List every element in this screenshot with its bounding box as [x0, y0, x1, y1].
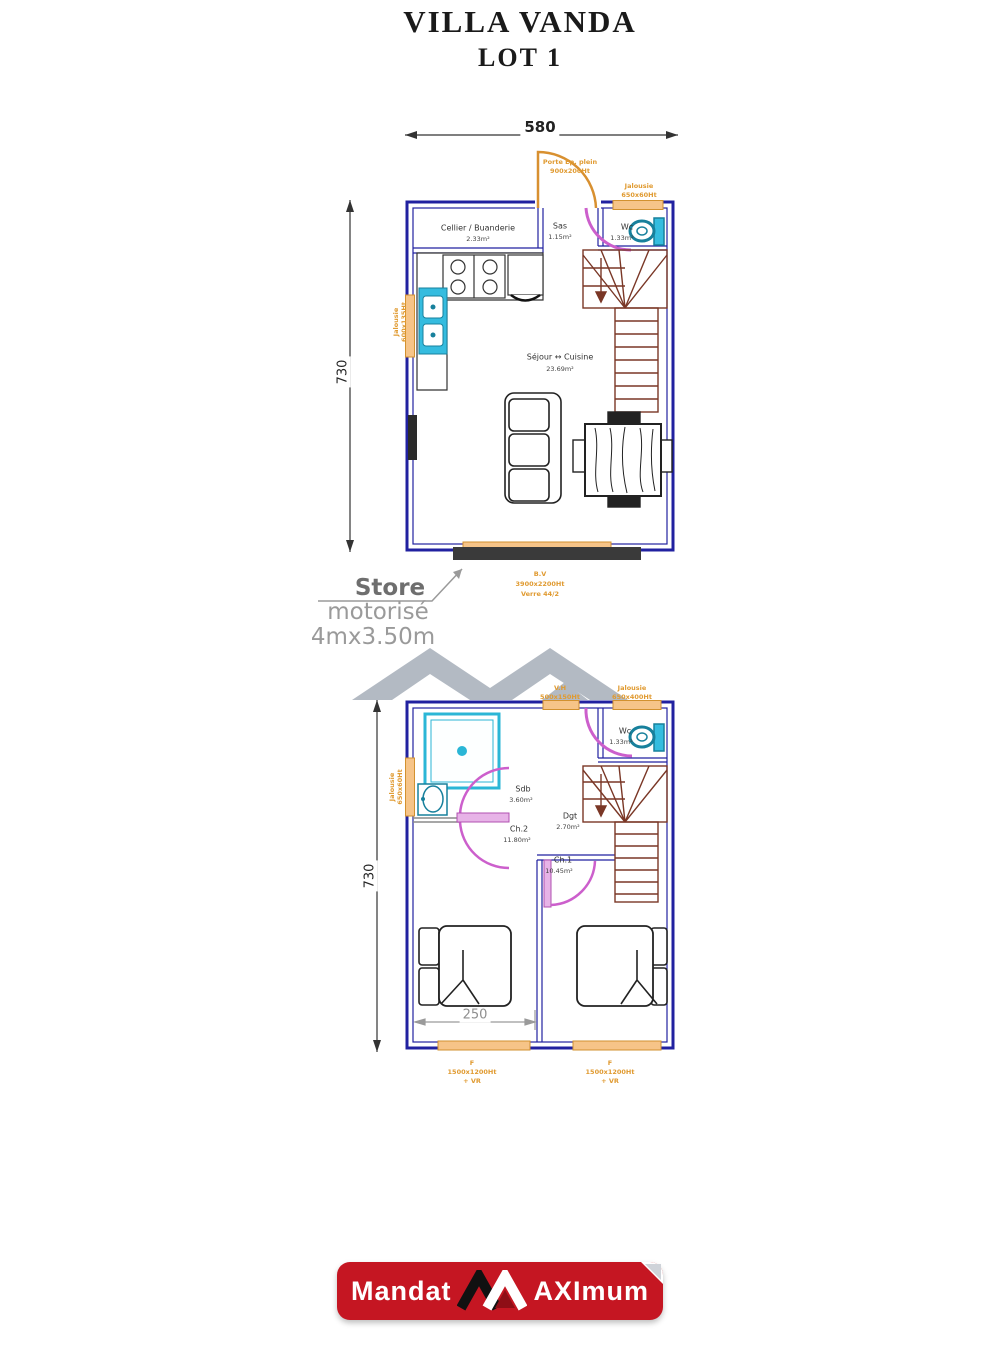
entry-door-label-1: Porte Ep. plein — [543, 158, 597, 166]
window-jalousie-first-label-1: Jalousie — [618, 684, 647, 692]
window-bottom-right — [573, 1041, 661, 1050]
brand-banner: Mandat AXImum — [337, 1262, 663, 1320]
shower-icon — [425, 714, 499, 788]
room-sejour-area: 23.69m² — [546, 365, 574, 373]
sofa — [505, 393, 561, 503]
window-top-vh — [543, 701, 579, 710]
banner-fold-shadow — [645, 1264, 661, 1280]
window-jalousie-first-label-2: 650x400Ht — [612, 693, 652, 701]
store-bar — [453, 547, 641, 560]
window-top-label-2: 650x60Ht — [621, 191, 656, 199]
room-sdb-area: 3.60m² — [509, 796, 532, 804]
bed-ch1 — [577, 926, 667, 1006]
window-left-label-2: 600x135Ht — [400, 302, 408, 342]
window-br-label-1: F — [608, 1059, 612, 1067]
window-bottom-left — [438, 1041, 530, 1050]
bay-label-3: Verre 44/2 — [521, 590, 559, 598]
window-left-first-label-2: 650x60Ht — [396, 769, 404, 804]
room-sas-area: 1.15m² — [548, 233, 571, 241]
sdb-partition — [413, 818, 459, 822]
window-left-jalousie-first — [406, 758, 415, 816]
page-title: VILLA VANDA — [403, 4, 637, 40]
wall-technical-block — [408, 415, 417, 460]
window-bl-label-1: F — [470, 1059, 474, 1067]
room-cellier-area: 2.33m² — [466, 235, 489, 243]
store-note-word: Store — [355, 575, 425, 601]
stairs — [583, 250, 667, 412]
room-dgt-label: Dgt — [563, 812, 577, 821]
dim-height-ground: 730 — [336, 357, 351, 388]
window-left-first-label-1: Jalousie — [388, 773, 396, 802]
ground-floor-plan — [405, 200, 675, 552]
store-note-line2: motorisé — [327, 599, 429, 625]
room-wc-first-area: 1.33m² — [609, 738, 632, 746]
brand-mandat: Mandat — [351, 1276, 452, 1307]
page-subtitle: LOT 1 — [478, 43, 562, 73]
bed-ch2 — [419, 926, 511, 1006]
room-cellier-label: Cellier / Buanderie — [441, 224, 515, 233]
room-ch1-area: 10.45m² — [545, 867, 573, 875]
window-vh-label-1: V.H — [554, 684, 566, 692]
room-sas-label: Sas — [553, 222, 567, 231]
dining-table — [573, 412, 672, 507]
store-note-line3: 4mx3.50m — [311, 624, 435, 650]
brand-aximum: AXImum — [533, 1276, 649, 1307]
room-wc-ground-label: Wc — [621, 223, 633, 232]
room-ch2-label: Ch.2 — [510, 825, 528, 834]
room-wc-ground-area: 1.33m² — [610, 234, 633, 242]
room-ch1-label: Ch.1 — [554, 856, 572, 865]
bathroom-sink-icon — [418, 784, 447, 815]
store-note-line1: Store — [355, 575, 425, 601]
toilet-icon — [630, 218, 664, 245]
dim-room-250: 250 — [460, 1008, 491, 1023]
room-sdb-label: Sdb — [515, 785, 530, 794]
room-ch2-area: 11.80m² — [503, 836, 531, 844]
window-bl-label-3: + VR — [463, 1077, 481, 1085]
entry-door-label-2: 900x200Ht — [550, 167, 590, 175]
floor-plan-sheet: VILLA VANDA LOT 1 580 730 — [0, 0, 1000, 1368]
window-top-jalousie — [613, 201, 663, 210]
window-br-label-3: + VR — [601, 1077, 619, 1085]
toilet-icon-first — [630, 724, 664, 751]
stairs-first — [583, 766, 667, 902]
dim-height-first: 730 — [363, 861, 378, 892]
window-top-jalousie-first — [613, 701, 661, 710]
dim-width-ground: 580 — [520, 118, 559, 136]
room-sejour-label: Séjour ↔ Cuisine — [527, 353, 594, 362]
window-left-label-1: Jalousie — [392, 308, 400, 337]
room-dgt-area: 2.70m² — [556, 823, 579, 831]
kitchen-sink-icon — [419, 288, 447, 354]
bay-label-2: 3900x2200Ht — [516, 580, 565, 588]
window-top-label-1: Jalousie — [625, 182, 654, 190]
room-wc-first-label: Wc — [619, 727, 631, 736]
watermark-logo — [352, 648, 652, 700]
window-br-label-2: 1500x1200Ht — [586, 1068, 635, 1076]
first-floor-plan — [405, 700, 675, 1050]
entry-door-opening — [535, 199, 601, 210]
bay-label-1: B.V — [534, 570, 546, 578]
window-bl-label-2: 1500x1200Ht — [448, 1068, 497, 1076]
window-vh-label-2: 500x150Ht — [540, 693, 580, 701]
brand-logo-m-icon — [457, 1270, 527, 1312]
